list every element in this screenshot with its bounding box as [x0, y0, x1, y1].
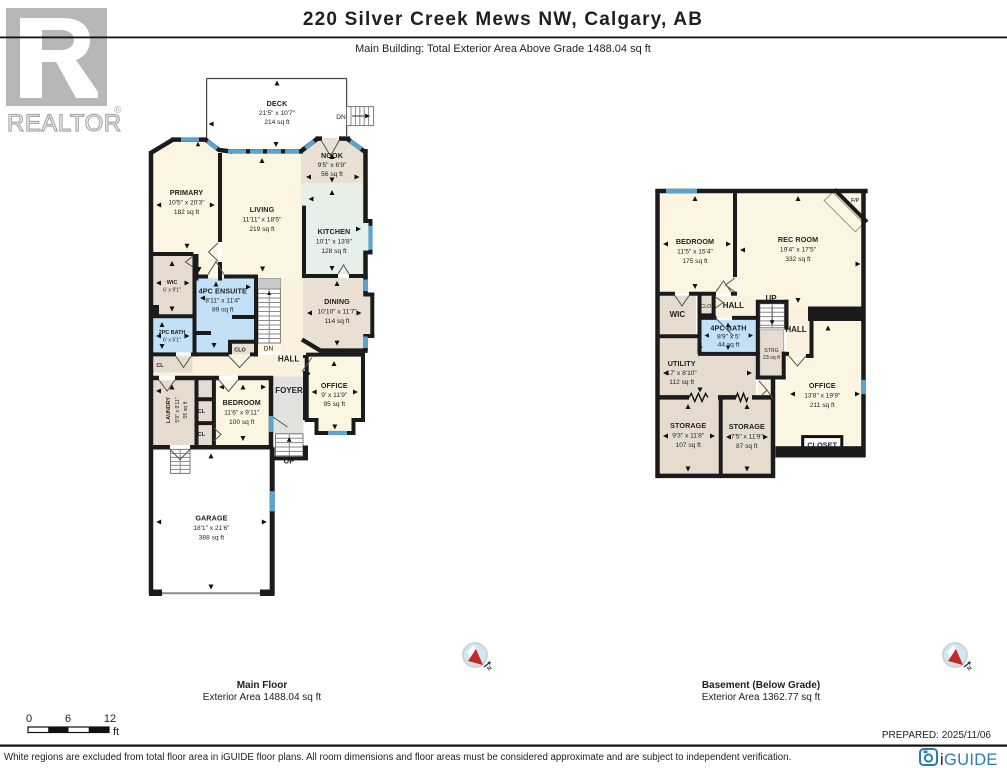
- svg-text:21'5" x 10'7": 21'5" x 10'7": [259, 110, 296, 117]
- svg-text:6: 6: [65, 713, 71, 725]
- svg-text:KITCHEN: KITCHEN: [318, 227, 351, 236]
- svg-text:10'5" x 20'3": 10'5" x 20'3": [168, 200, 205, 207]
- svg-text:HALL: HALL: [278, 355, 299, 364]
- svg-text:112 sq ft: 112 sq ft: [669, 379, 694, 386]
- svg-text:REALTOR: REALTOR: [7, 110, 122, 137]
- svg-text:WIC: WIC: [167, 280, 178, 286]
- svg-text:CL: CL: [198, 432, 206, 438]
- svg-text:DECK: DECK: [267, 99, 288, 108]
- svg-text:9'3" x 11'8": 9'3" x 11'8": [672, 433, 705, 440]
- svg-text:Basement (Below Grade): Basement (Below Grade): [702, 680, 820, 691]
- svg-text:Main Floor: Main Floor: [237, 680, 288, 691]
- svg-text:BEDROOM: BEDROOM: [676, 237, 714, 246]
- svg-text:HALL: HALL: [785, 325, 806, 334]
- svg-text:89 sq ft: 89 sq ft: [212, 307, 234, 314]
- svg-text:CLO: CLO: [700, 304, 711, 310]
- svg-text:OFFICE: OFFICE: [321, 381, 348, 390]
- svg-text:11'6" x 9'11": 11'6" x 9'11": [224, 410, 260, 417]
- svg-text:DN: DN: [264, 346, 274, 353]
- svg-text:87 sq ft: 87 sq ft: [736, 443, 758, 450]
- svg-text:FOYER: FOYER: [275, 386, 303, 395]
- svg-text:214 sq ft: 214 sq ft: [264, 119, 289, 126]
- svg-text:OFFICE: OFFICE: [809, 381, 836, 390]
- svg-text:STORAGE: STORAGE: [670, 421, 706, 430]
- svg-text:®: ®: [114, 105, 122, 116]
- svg-text:LAUNDRY: LAUNDRY: [166, 397, 172, 424]
- svg-text:332 sq ft: 332 sq ft: [785, 256, 810, 263]
- svg-text:95 sq ft: 95 sq ft: [323, 401, 345, 408]
- svg-text:DINING: DINING: [324, 297, 350, 306]
- svg-text:2PC BATH: 2PC BATH: [159, 330, 186, 336]
- svg-text:UTILITY: UTILITY: [668, 359, 696, 368]
- svg-text:175 sq ft: 175 sq ft: [682, 258, 707, 265]
- svg-text:11'5" x 15'4": 11'5" x 15'4": [677, 249, 713, 256]
- svg-text:6' x 5'1": 6' x 5'1": [163, 338, 181, 344]
- svg-text:17' x 8'10": 17' x 8'10": [667, 370, 698, 377]
- svg-text:11'11" x 18'5": 11'11" x 18'5": [243, 217, 283, 224]
- svg-text:9'5" x 6'9": 9'5" x 6'9": [318, 162, 347, 169]
- svg-text:REC ROOM: REC ROOM: [778, 235, 818, 244]
- svg-text:220 Silver Creek Mews NW, Calg: 220 Silver Creek Mews NW, Calgary, AB: [303, 9, 703, 30]
- svg-text:6' x 9'1": 6' x 9'1": [163, 288, 181, 294]
- svg-text:CLO: CLO: [234, 348, 245, 354]
- svg-text:12: 12: [104, 713, 116, 725]
- svg-text:Exterior Area 1488.04 sq ft: Exterior Area 1488.04 sq ft: [203, 692, 322, 703]
- svg-text:4PC ENSUITE: 4PC ENSUITE: [199, 287, 247, 296]
- svg-text:PRIMARY: PRIMARY: [170, 188, 204, 197]
- svg-text:9' x 11'9": 9' x 11'9": [321, 392, 348, 399]
- svg-text:STRG: STRG: [764, 348, 778, 354]
- svg-text:HALL: HALL: [723, 301, 744, 310]
- svg-text:10'10" x 11'7": 10'10" x 11'7": [317, 309, 357, 316]
- svg-text:211 sq ft: 211 sq ft: [810, 402, 835, 409]
- svg-text:7'5" x 11'9": 7'5" x 11'9": [731, 434, 764, 441]
- svg-text:13'8" x 19'9": 13'8" x 19'9": [804, 393, 841, 400]
- svg-text:107 sq ft: 107 sq ft: [676, 442, 701, 449]
- svg-text:5'9" x 9'11": 5'9" x 9'11": [175, 397, 181, 422]
- svg-text:iGUIDE: iGUIDE: [940, 751, 998, 768]
- svg-text:ft: ft: [113, 726, 119, 738]
- svg-text:White regions are excluded fro: White regions are excluded from total fl…: [4, 752, 791, 763]
- svg-text:CL: CL: [156, 363, 164, 369]
- svg-text:8'11" x 11'4": 8'11" x 11'4": [205, 298, 241, 305]
- svg-text:PREPARED: 2025/11/06: PREPARED: 2025/11/06: [882, 730, 992, 741]
- svg-text:Exterior Area 1362.77 sq ft: Exterior Area 1362.77 sq ft: [702, 692, 821, 703]
- svg-text:DN: DN: [336, 114, 346, 121]
- svg-text:BEDROOM: BEDROOM: [223, 398, 261, 407]
- svg-text:18'1" x 21'6": 18'1" x 21'6": [193, 525, 230, 532]
- svg-text:114 sq ft: 114 sq ft: [325, 318, 350, 325]
- svg-text:219 sq ft: 219 sq ft: [249, 226, 274, 233]
- svg-text:128 sq ft: 128 sq ft: [321, 248, 346, 255]
- svg-text:388 sq ft: 388 sq ft: [199, 535, 224, 542]
- svg-text:8'9" x 5': 8'9" x 5': [717, 334, 740, 341]
- svg-text:F/P: F/P: [851, 198, 860, 204]
- svg-text:Main Building: Total Exterior: Main Building: Total Exterior Area Above…: [355, 43, 651, 55]
- svg-text:182 sq ft: 182 sq ft: [174, 209, 199, 216]
- svg-text:55 sq ft: 55 sq ft: [183, 401, 189, 419]
- svg-text:STORAGE: STORAGE: [729, 422, 765, 431]
- svg-text:10'1" x 13'8": 10'1" x 13'8": [316, 239, 353, 246]
- svg-text:56 sq ft: 56 sq ft: [321, 171, 343, 178]
- svg-text:WIC: WIC: [670, 310, 686, 319]
- svg-text:19'4" x 17'5": 19'4" x 17'5": [780, 247, 817, 254]
- svg-text:GARAGE: GARAGE: [195, 514, 227, 523]
- svg-text:CL: CL: [198, 409, 206, 415]
- svg-text:23 sq ft: 23 sq ft: [763, 355, 781, 361]
- svg-text:0: 0: [26, 713, 32, 725]
- svg-text:100 sq ft: 100 sq ft: [229, 419, 254, 426]
- svg-text:LIVING: LIVING: [250, 205, 275, 214]
